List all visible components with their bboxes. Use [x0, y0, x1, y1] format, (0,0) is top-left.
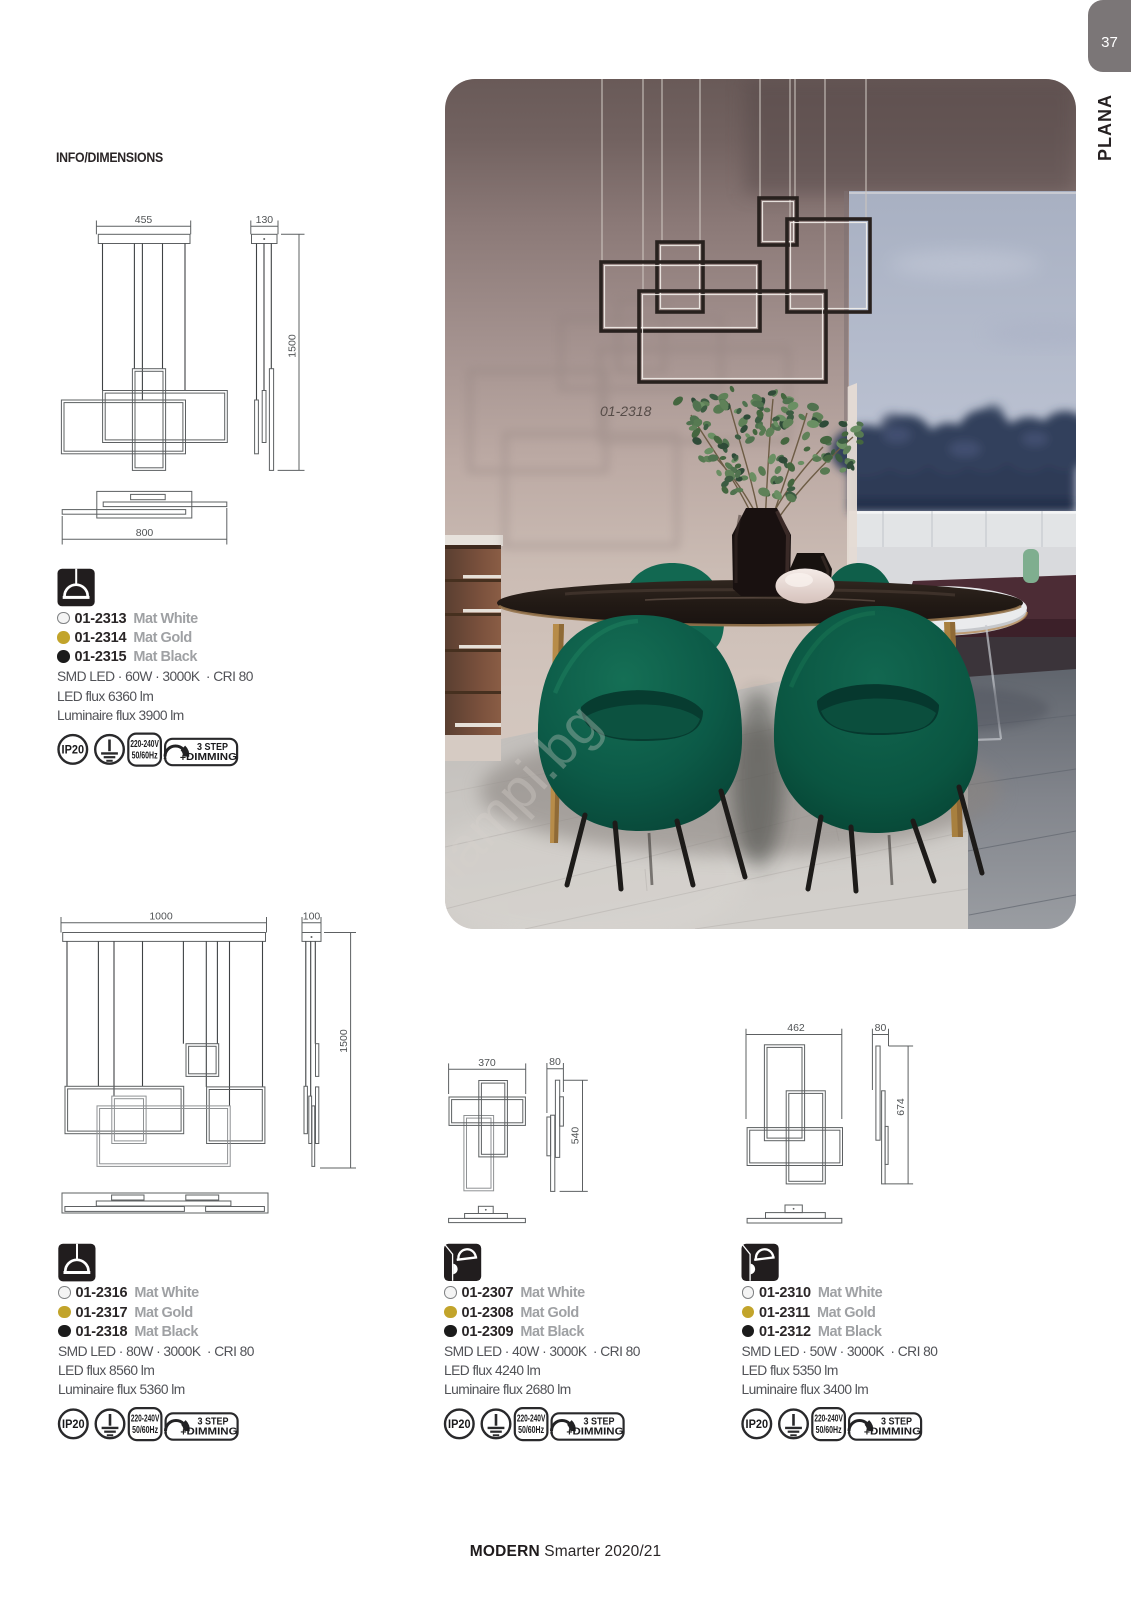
svg-text:1500: 1500 — [338, 1029, 350, 1053]
svg-text:462: 462 — [787, 1022, 805, 1034]
svg-text:130: 130 — [256, 214, 274, 226]
svg-text:455: 455 — [135, 214, 153, 226]
svg-text:1500: 1500 — [287, 334, 299, 358]
svg-text:80: 80 — [875, 1022, 887, 1034]
svg-text:80: 80 — [549, 1056, 561, 1068]
svg-text:800: 800 — [136, 527, 154, 539]
svg-text:100: 100 — [303, 910, 321, 922]
svg-text:540: 540 — [570, 1127, 582, 1145]
svg-text:370: 370 — [478, 1057, 496, 1069]
svg-text:1000: 1000 — [149, 910, 173, 922]
svg-text:674: 674 — [895, 1098, 907, 1116]
